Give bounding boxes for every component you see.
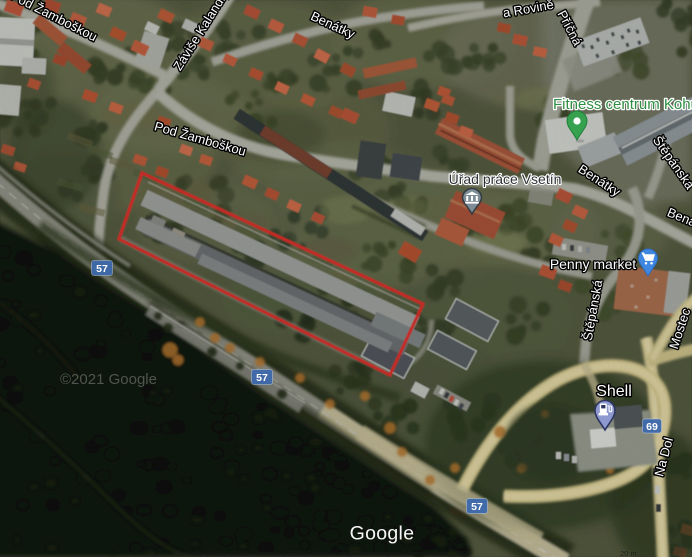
svg-text:Snímky ©2021 CNES / Airbus, GE: Snímky ©2021 CNES / Airbus, GEODIS Brno,… xyxy=(178,549,471,557)
svg-text:Úřad práce Vsetín: Úřad práce Vsetín xyxy=(449,171,562,187)
svg-text:57: 57 xyxy=(96,263,108,275)
svg-text:57: 57 xyxy=(471,501,483,513)
svg-text:69: 69 xyxy=(646,421,658,433)
svg-text:Penny market: Penny market xyxy=(550,256,636,272)
svg-text:©2021 Google: ©2021 Google xyxy=(60,371,157,388)
svg-text:Shell: Shell xyxy=(596,383,632,400)
svg-text:57: 57 xyxy=(256,372,268,384)
svg-text:20 m: 20 m xyxy=(620,549,637,557)
svg-text:Fitness centrum Kohút: Fitness centrum Kohút xyxy=(553,96,692,113)
svg-text:Google: Google xyxy=(350,523,415,545)
